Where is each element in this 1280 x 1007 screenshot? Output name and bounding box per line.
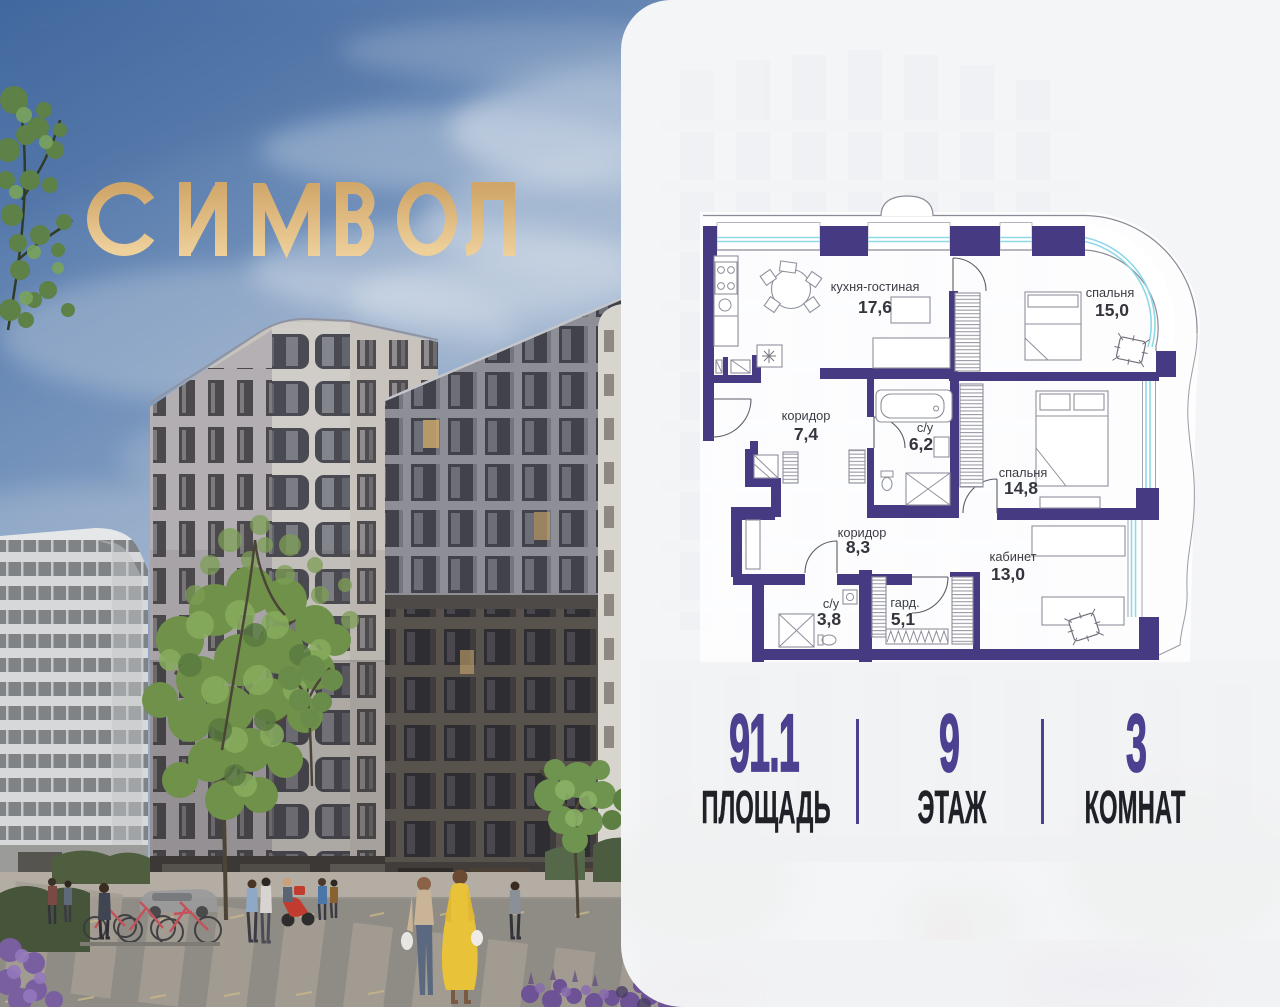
- svg-text:5,1: 5,1: [891, 609, 916, 629]
- svg-text:8,3: 8,3: [846, 537, 871, 557]
- svg-text:3,8: 3,8: [817, 609, 842, 629]
- svg-text:17,6: 17,6: [858, 297, 892, 317]
- svg-text:коридор: коридор: [782, 408, 831, 423]
- svg-text:гард.: гард.: [890, 595, 919, 610]
- svg-text:13,0: 13,0: [991, 564, 1025, 584]
- svg-text:14,8: 14,8: [1004, 478, 1038, 498]
- svg-text:6,2: 6,2: [909, 434, 934, 454]
- svg-text:спальня: спальня: [1086, 285, 1135, 300]
- svg-text:7,4: 7,4: [794, 424, 819, 444]
- svg-text:кухня-гостиная: кухня-гостиная: [831, 279, 920, 294]
- svg-text:кабинет: кабинет: [989, 549, 1036, 564]
- svg-text:с/у: с/у: [917, 420, 934, 435]
- svg-text:15,0: 15,0: [1095, 300, 1129, 320]
